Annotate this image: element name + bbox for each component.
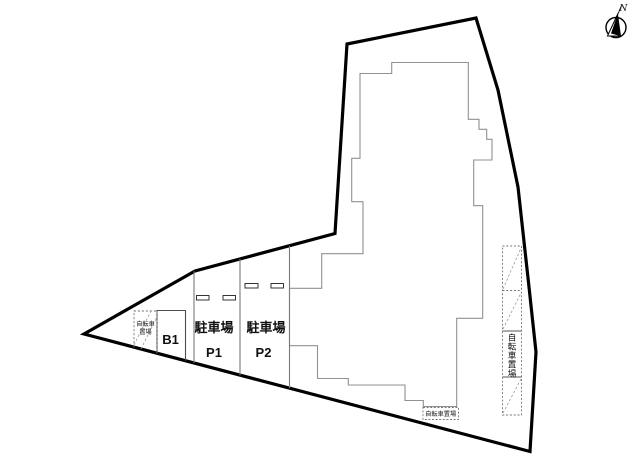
svg-text:場: 場 — [508, 368, 517, 379]
parking-p2-code: P2 — [256, 345, 272, 360]
north-compass: N — [606, 4, 629, 38]
parking-p1-code: P1 — [206, 345, 222, 360]
basement-b1-label: B1 — [162, 332, 179, 347]
bicycle-left-label-line2: 置場 — [139, 328, 151, 336]
parking-p1-title: 駐車場 — [194, 320, 233, 335]
building-outline — [290, 63, 493, 407]
bicycle-right-label-vertical: 自 転 車 置 場 — [508, 332, 517, 379]
parking-stall-markers-p1 — [197, 296, 236, 301]
bicycle-area-right — [503, 246, 522, 415]
parking-p2-title: 駐車場 — [246, 320, 285, 335]
bicycle-bottom-label: 自転車置場 — [425, 410, 456, 418]
site-plan-canvas: 駐車場 P1 駐車場 P2 B1 自転車 置場 自転車置場 自 転 車 置 場 … — [0, 0, 639, 469]
compass-north-label: N — [619, 4, 629, 14]
parking-stall-markers-p2 — [245, 284, 284, 289]
bicycle-left-label-line1: 自転車 — [136, 320, 155, 328]
